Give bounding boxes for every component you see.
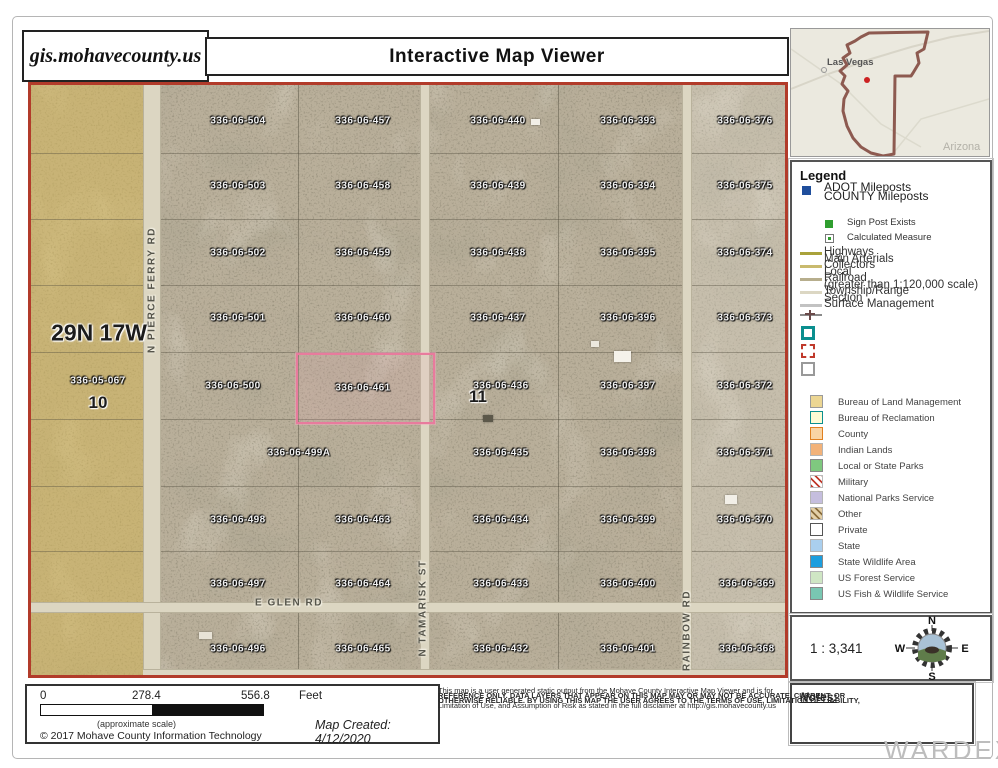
parcel-label[interactable]: 336-06-376	[717, 116, 772, 127]
watermark: WARDEX	[884, 735, 998, 766]
scale-ratio: 1 : 3,341	[810, 641, 863, 656]
parcel-label[interactable]: 336-06-503	[210, 181, 265, 192]
legend-panel: Legend ADOT MilepostsCOUNTY MilepostsSig…	[790, 160, 992, 614]
parcel-label[interactable]: 336-06-374	[717, 248, 772, 259]
legend-milepost-label: COUNTY Mileposts	[824, 189, 928, 203]
surface-category-label: Local or State Parks	[838, 461, 924, 472]
building-structure	[199, 632, 212, 639]
surface-management-swatch	[801, 362, 815, 376]
scalebar-panel: 0 278.4 556.8 Feet (approximate scale) ©…	[25, 684, 440, 744]
surface-category-swatch	[810, 507, 823, 520]
parcel-label[interactable]: 336-06-459	[335, 248, 390, 259]
surface-category-swatch	[810, 587, 823, 600]
parcel-label[interactable]: 336-06-435	[473, 448, 528, 459]
parcel-label[interactable]: 336-06-371	[717, 448, 772, 459]
site-url-box: gis.mohavecounty.us	[22, 30, 209, 82]
building-structure	[725, 495, 737, 504]
road-label: N RAINBOW RD	[682, 590, 693, 678]
parcel-label[interactable]: 336-06-372	[717, 381, 772, 392]
parcel-label[interactable]: 336-06-397	[600, 381, 655, 392]
parcel-label[interactable]: 336-06-401	[600, 644, 655, 655]
legend-line-swatch	[800, 278, 822, 281]
parcel-label[interactable]: 336-06-436	[473, 381, 528, 392]
building-structure	[614, 351, 631, 362]
compass-s: S	[928, 671, 935, 681]
parcel-label[interactable]: 336-06-458	[335, 181, 390, 192]
parcel-label[interactable]: 336-06-396	[600, 313, 655, 324]
parcel-label[interactable]: 336-06-502	[210, 248, 265, 259]
building-structure	[591, 341, 599, 347]
parcel-label[interactable]: 336-06-440	[470, 116, 525, 127]
parcel-label[interactable]: 336-06-498	[210, 515, 265, 526]
surface-category-label: State	[838, 541, 860, 552]
copyright: © 2017 Mohave County Information Technol…	[40, 730, 262, 742]
disclaimer-line: Limitation of Use, and Assumption of Ris…	[438, 701, 776, 710]
parcel-label[interactable]: 336-06-393	[600, 116, 655, 127]
grid-line	[558, 85, 559, 675]
page-title: Interactive Map Viewer	[389, 46, 605, 68]
surface-category-label: US Fish & Wildlife Service	[838, 589, 948, 600]
legend-milepost-subitem: Sign Post Exists	[847, 217, 916, 228]
signpost-icon	[825, 220, 833, 228]
surface-category-swatch	[810, 555, 823, 568]
parcel-label[interactable]: 336-06-501	[210, 313, 265, 324]
legend-milepost-subitem: Calculated Measure	[847, 232, 932, 243]
calculated-measure-icon	[825, 234, 834, 243]
parcel-label[interactable]: 336-06-434	[473, 515, 528, 526]
section-number: 10	[89, 393, 108, 413]
overview-map-graphic	[791, 29, 989, 156]
road-pierce-ferry	[143, 85, 161, 675]
parcel-label[interactable]: 336-06-395	[600, 248, 655, 259]
legend-line-swatch	[800, 252, 822, 255]
state-label: Arizona	[943, 141, 980, 153]
county-outline	[840, 32, 928, 156]
parcel-label: 336-05-067	[70, 376, 125, 387]
township-range-label: 29N 17W	[51, 320, 147, 347]
parcel-label[interactable]: 336-06-457	[335, 116, 390, 127]
parcel-label[interactable]: 336-06-400	[600, 579, 655, 590]
surface-category-label: County	[838, 429, 868, 440]
legend-line-swatch	[800, 304, 822, 307]
parcel-label[interactable]: 336-06-370	[717, 515, 772, 526]
compass-w: W	[895, 643, 906, 655]
scale-bar	[40, 704, 264, 716]
selected-parcel-label: 336-06-461	[335, 383, 390, 394]
surface-category-swatch	[810, 571, 823, 584]
surface-category-swatch	[810, 523, 823, 536]
parcel-label[interactable]: 336-06-463	[335, 515, 390, 526]
scalebar-unit: Feet	[299, 690, 322, 702]
parcel-label[interactable]: 336-06-438	[470, 248, 525, 259]
disclaimer-text: This map is a user generated static outp…	[438, 686, 786, 716]
parcel-label[interactable]: 336-06-433	[473, 579, 528, 590]
scalebar-caption: (approximate scale)	[97, 719, 176, 729]
parcel-label[interactable]: 336-06-375	[717, 181, 772, 192]
parcel-label[interactable]: 336-06-398	[600, 448, 655, 459]
railroad-crossing-icon	[800, 314, 822, 316]
surface-category-label: State Wildlife Area	[838, 557, 916, 568]
compass-rose: N S W E	[890, 615, 974, 681]
legend-line-swatch	[800, 265, 822, 268]
parcel-label[interactable]: 336-06-465	[335, 644, 390, 655]
road-label: E GLEN RD	[255, 598, 323, 609]
location-dot	[864, 77, 870, 83]
legend-line-label: Surface Management	[824, 298, 934, 310]
compass-n: N	[928, 615, 936, 627]
legend-line-swatch	[800, 291, 822, 294]
parcel-label[interactable]: 336-06-432	[473, 644, 528, 655]
surface-category-swatch	[810, 475, 823, 488]
surface-category-label: Military	[838, 477, 868, 488]
road-label: N PIERCE FERRY RD	[147, 227, 158, 353]
parcel-label[interactable]: 336-06-439	[470, 181, 525, 192]
parcel-label[interactable]: 336-06-464	[335, 579, 390, 590]
surface-category-swatch	[810, 459, 823, 472]
road-rainbow	[682, 85, 692, 675]
surface-category-swatch	[810, 411, 823, 424]
surface-category-label: Other	[838, 509, 862, 520]
parcel-label[interactable]: 336-06-373	[717, 313, 772, 324]
parcel-label[interactable]: 336-06-504	[210, 116, 265, 127]
parcel-label[interactable]: 336-06-497	[210, 579, 265, 590]
building-structure	[531, 119, 540, 125]
surface-category-label: Indian Lands	[838, 445, 892, 456]
surface-category-label: National Parks Service	[838, 493, 934, 504]
surface-category-label: US Forest Service	[838, 573, 915, 584]
site-url: gis.mohavecounty.us	[30, 45, 202, 68]
page-title-box: Interactive Map Viewer	[205, 37, 789, 76]
compass-e: E	[961, 643, 968, 655]
surface-category-swatch	[810, 443, 823, 456]
parcel-label[interactable]: 336-06-399	[600, 515, 655, 526]
map-created-date: Map Created: 4/12/2020	[315, 718, 438, 746]
adot-milepost-icon	[802, 186, 811, 195]
parcel-label[interactable]: 336-06-394	[600, 181, 655, 192]
surface-category-label: Private	[838, 525, 868, 536]
scalebar-start: 0	[40, 690, 46, 702]
parcel-label[interactable]: 336-06-496	[210, 644, 265, 655]
surface-category-swatch	[810, 427, 823, 440]
surface-category-swatch	[810, 539, 823, 552]
road-label: N TAMARISK ST	[418, 559, 429, 656]
parcel-label[interactable]: 336-06-500	[205, 381, 260, 392]
road-glen	[31, 602, 785, 613]
parcel-label[interactable]: 336-06-368	[719, 644, 774, 655]
section-swatch	[801, 344, 815, 358]
overview-locator-map: Las Vegas Arizona	[790, 28, 990, 157]
surface-category-label: Bureau of Reclamation	[838, 413, 935, 424]
scalebar-end: 556.8	[241, 690, 270, 702]
scale-panel: 1 : 3,341 N S W E	[790, 615, 992, 681]
map-canvas: N PIERCE FERRY RDN TAMARISK STN RAINBOW …	[28, 82, 788, 678]
surface-category-swatch	[810, 491, 823, 504]
parcel-label[interactable]: 336-06-460	[335, 313, 390, 324]
surface-category-swatch	[810, 395, 823, 408]
city-label: Las Vegas	[827, 57, 873, 68]
township-range-swatch	[801, 326, 815, 340]
surface-category-label: Bureau of Land Management	[838, 397, 961, 408]
scalebar-mid: 278.4	[132, 690, 161, 702]
parcel-label[interactable]: 336-06-499A	[268, 448, 331, 459]
parcel-label[interactable]: 336-06-369	[719, 579, 774, 590]
building-structure	[483, 415, 493, 422]
parcel-label[interactable]: 336-06-437	[470, 313, 525, 324]
